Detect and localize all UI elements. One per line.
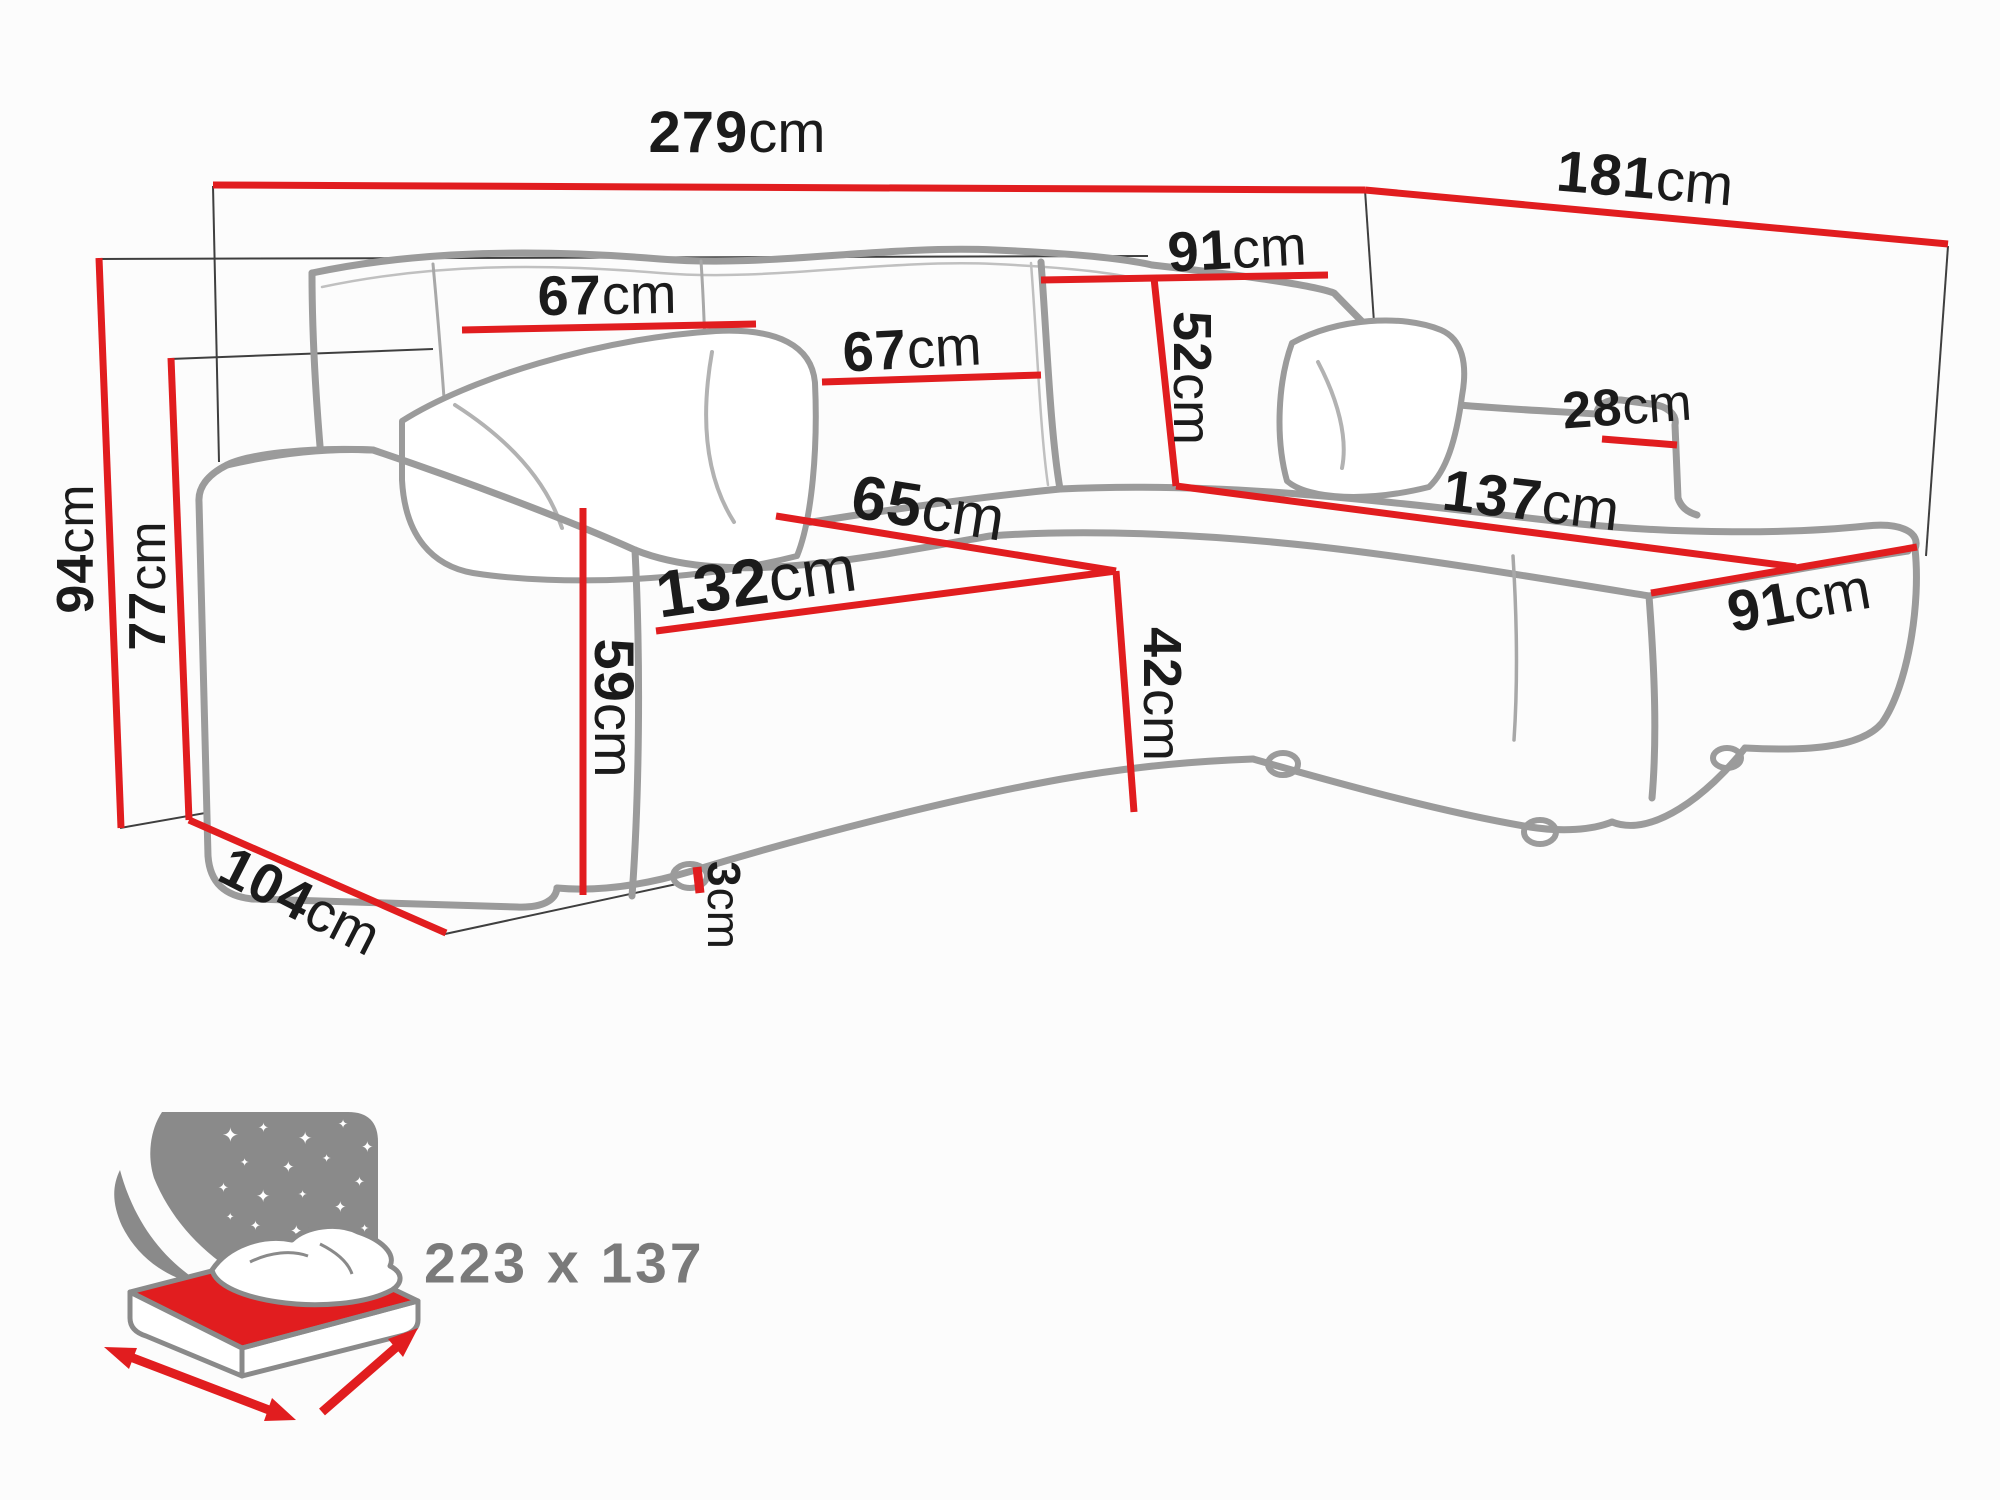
star-icon: ✦: [222, 1125, 239, 1147]
dim-label-chaise-armrest: 28cm: [1561, 377, 1693, 438]
dim-label-backrest-height: 77cm: [122, 521, 174, 650]
dim-label-armrest-height: 59cm: [586, 639, 642, 778]
star-icon: ✦: [218, 1180, 229, 1195]
right-pillow: [1280, 320, 1465, 496]
chaise-front-left-edge: [1649, 596, 1655, 798]
star-icon: ✦: [226, 1212, 234, 1223]
star-icon: ✦: [250, 1218, 261, 1233]
sleeping-area-size: 223 x 137: [424, 1236, 705, 1293]
chaise-left-top-edge: [1312, 546, 1649, 596]
dim-label-seat-height: 42cm: [1135, 627, 1189, 761]
chaise-bottom-edge: [1253, 759, 1612, 830]
star-icon: ✦: [354, 1174, 365, 1189]
reference-line-left-corner: [213, 186, 219, 462]
sofa-dimension-diagram: ✦ ✦ ✦ ✦ ✦ ✦ ✦ ✦ ✦ ✦ ✦ ✦ ✦ ✦ ✦ ✦ ✦ ✦ ✦ ✦: [0, 0, 2000, 1500]
dim-label-corner-width: 91cm: [1166, 217, 1308, 280]
chaise-front-seam: [1513, 556, 1517, 740]
dimension-line-28: [1602, 439, 1677, 445]
star-icon: ✦: [361, 1139, 374, 1156]
star-icon: ✦: [298, 1189, 307, 1201]
dim-label-back-height: 94cm: [50, 484, 102, 613]
dim-label-back-cushion-mid: 67cm: [841, 317, 983, 380]
star-icon: ✦: [298, 1129, 312, 1148]
star-icon: ✦: [258, 1120, 269, 1135]
arrowhead-icon: [104, 1347, 137, 1369]
reference-line-right-corner: [1926, 246, 1948, 556]
arrowhead-icon: [264, 1398, 296, 1421]
star-icon: ✦: [334, 1199, 347, 1216]
dimension-line-279: [213, 185, 1365, 190]
reference-line-backrest-height: [170, 349, 433, 359]
base-bottom-edge: [557, 759, 1253, 889]
dim-label-back-cushion-left: 67cm: [537, 266, 677, 324]
dim-label-total-width: 279cm: [648, 104, 825, 162]
star-icon: ✦: [240, 1157, 249, 1169]
backrest-top-inner-seam: [322, 263, 1138, 287]
star-icon: ✦: [322, 1153, 331, 1165]
dim-label-total-depth: 181cm: [1554, 142, 1735, 215]
dim-label-back-cushion-height: 52cm: [1165, 311, 1219, 445]
star-icon: ✦: [338, 1117, 348, 1131]
sofa-bed-icon: ✦ ✦ ✦ ✦ ✦ ✦ ✦ ✦ ✦ ✦ ✦ ✦ ✦ ✦ ✦ ✦ ✦ ✦ ✦ ✦: [104, 1112, 418, 1421]
back-left-corner-edge: [312, 273, 321, 458]
star-icon: ✦: [256, 1187, 270, 1206]
diagram-artwork: ✦ ✦ ✦ ✦ ✦ ✦ ✦ ✦ ✦ ✦ ✦ ✦ ✦ ✦ ✦ ✦ ✦ ✦ ✦ ✦: [0, 0, 2000, 1500]
dim-label-leg-height: 3cm: [701, 861, 747, 949]
star-icon: ✦: [282, 1159, 295, 1176]
